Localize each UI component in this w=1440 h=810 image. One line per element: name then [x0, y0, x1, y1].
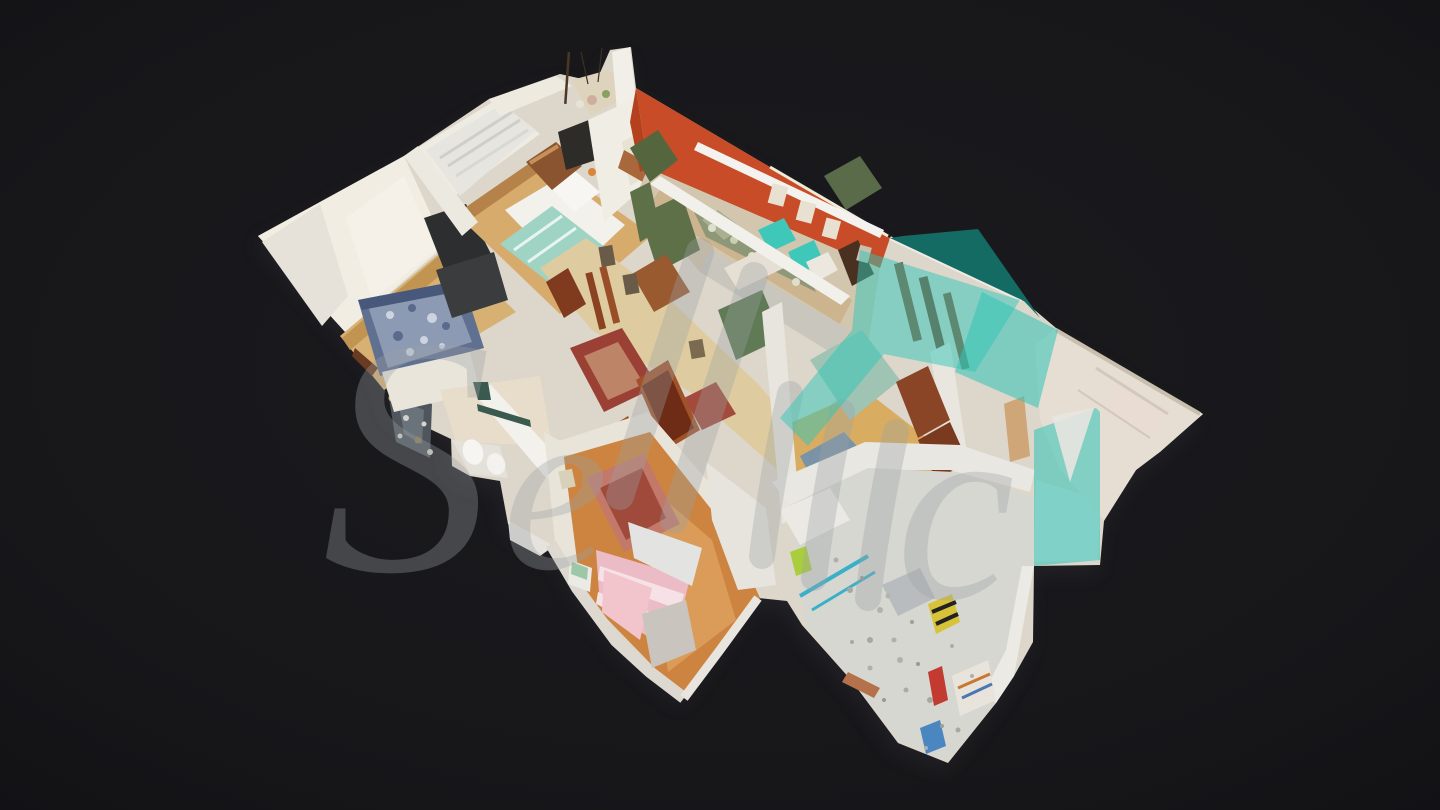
svg-text:e: e — [502, 354, 609, 620]
svg-text:S: S — [322, 267, 492, 644]
svg-text:c: c — [896, 359, 1015, 656]
